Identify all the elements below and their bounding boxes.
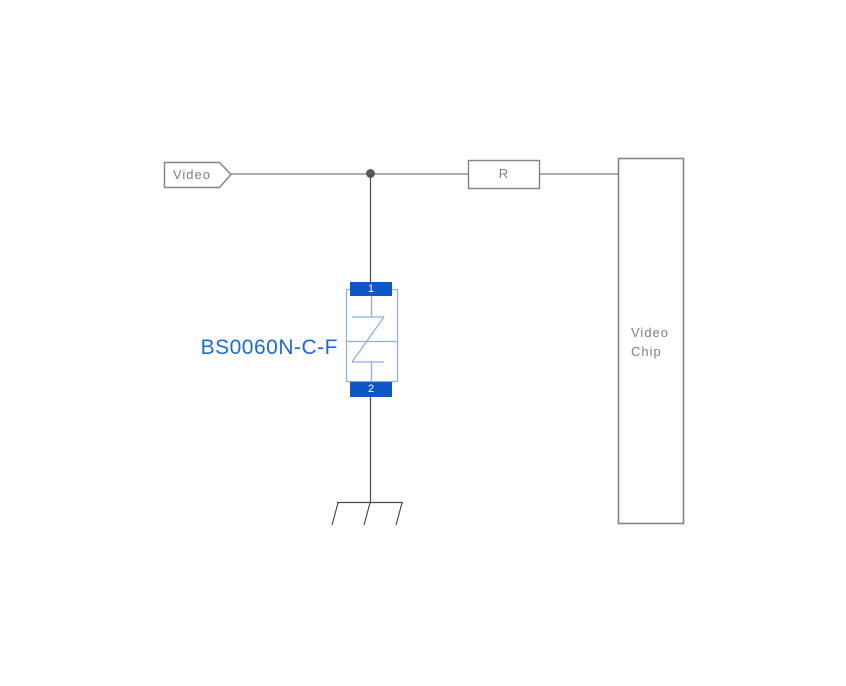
video-chip-label-line2: Chip bbox=[631, 342, 687, 361]
video-chip-label: Video Chip bbox=[631, 323, 687, 361]
pin-1-number: 1 bbox=[350, 282, 392, 296]
net-label: Video bbox=[164, 162, 220, 187]
resistor-label: R bbox=[468, 160, 540, 188]
video-chip-label-line1: Video bbox=[631, 323, 687, 342]
schematic-canvas: Video R Video Chip BS0060N-C-F 1 2 bbox=[0, 0, 846, 686]
ground-symbol bbox=[332, 503, 403, 526]
device-part-number: BS0060N-C-F bbox=[150, 334, 338, 361]
pin-2-number: 2 bbox=[350, 382, 392, 397]
schematic-drawing bbox=[0, 0, 846, 686]
